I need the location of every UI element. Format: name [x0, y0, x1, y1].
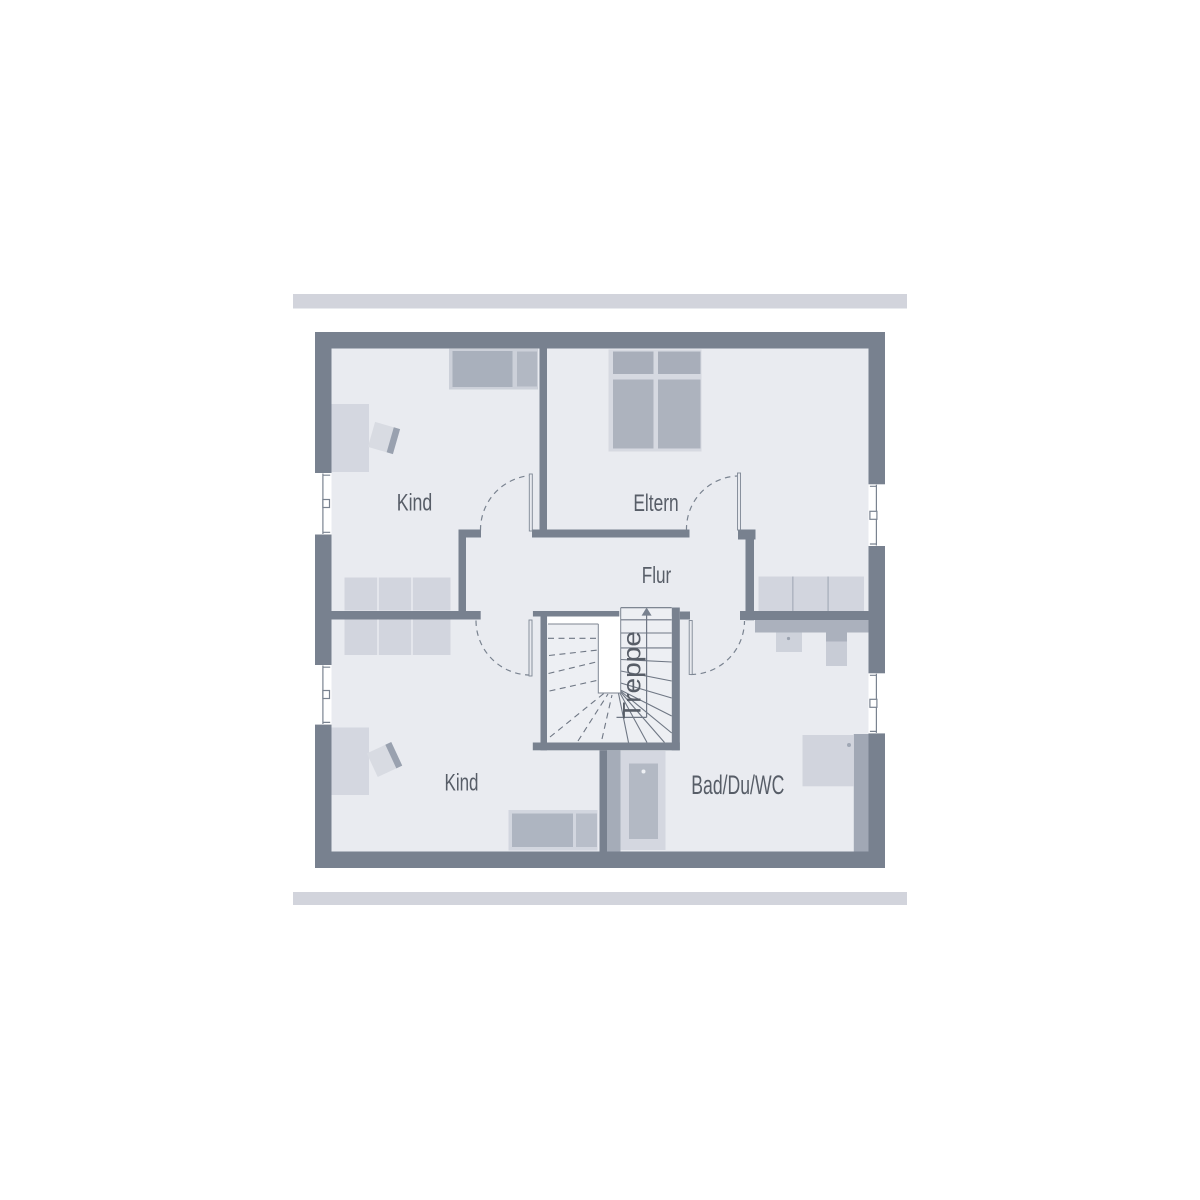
svg-text:Kind: Kind	[397, 490, 433, 517]
svg-text:Eltern: Eltern	[633, 490, 678, 517]
svg-text:Kind: Kind	[445, 770, 479, 797]
svg-text:Flur: Flur	[642, 562, 672, 588]
svg-text:Bad/Du/WC: Bad/Du/WC	[691, 770, 784, 800]
svg-text:Treppe: Treppe	[619, 631, 647, 719]
